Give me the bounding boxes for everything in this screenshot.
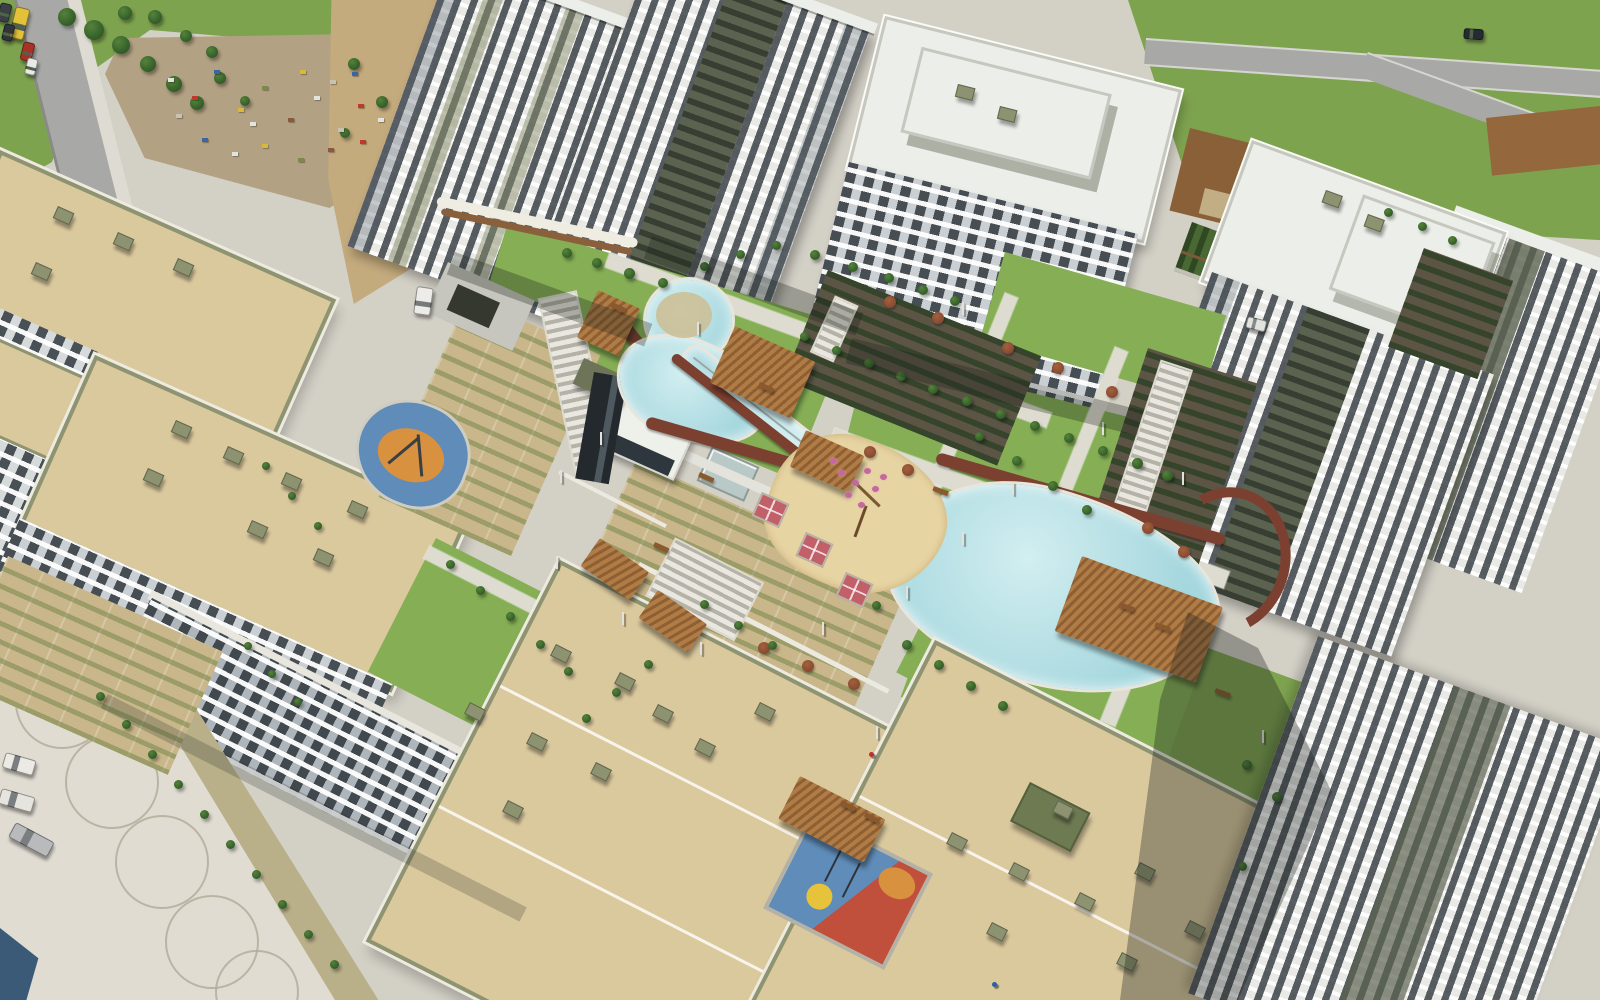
- dirt-patch-right-2: [1486, 105, 1600, 175]
- play-equipment-bars: [835, 463, 881, 508]
- cutout-yellow-circle: [802, 879, 837, 914]
- cutout-orange-patch: [873, 861, 921, 905]
- tower-3-penthouse: [900, 47, 1111, 180]
- tree-icon: [810, 250, 820, 260]
- elevator-glass-stripe: [594, 375, 620, 483]
- tower-4-lower-olive-band: [1324, 686, 1510, 1000]
- pool-1-dry-patch: [656, 292, 712, 338]
- cutout-post-2: [842, 863, 861, 898]
- aerial-photo-residential-complex: [0, 0, 1600, 1000]
- roof-ridge-line-1: [499, 685, 839, 860]
- playground-left-orange: [370, 419, 452, 491]
- cutout-post-1: [824, 846, 844, 883]
- play-equipment-post: [853, 505, 867, 537]
